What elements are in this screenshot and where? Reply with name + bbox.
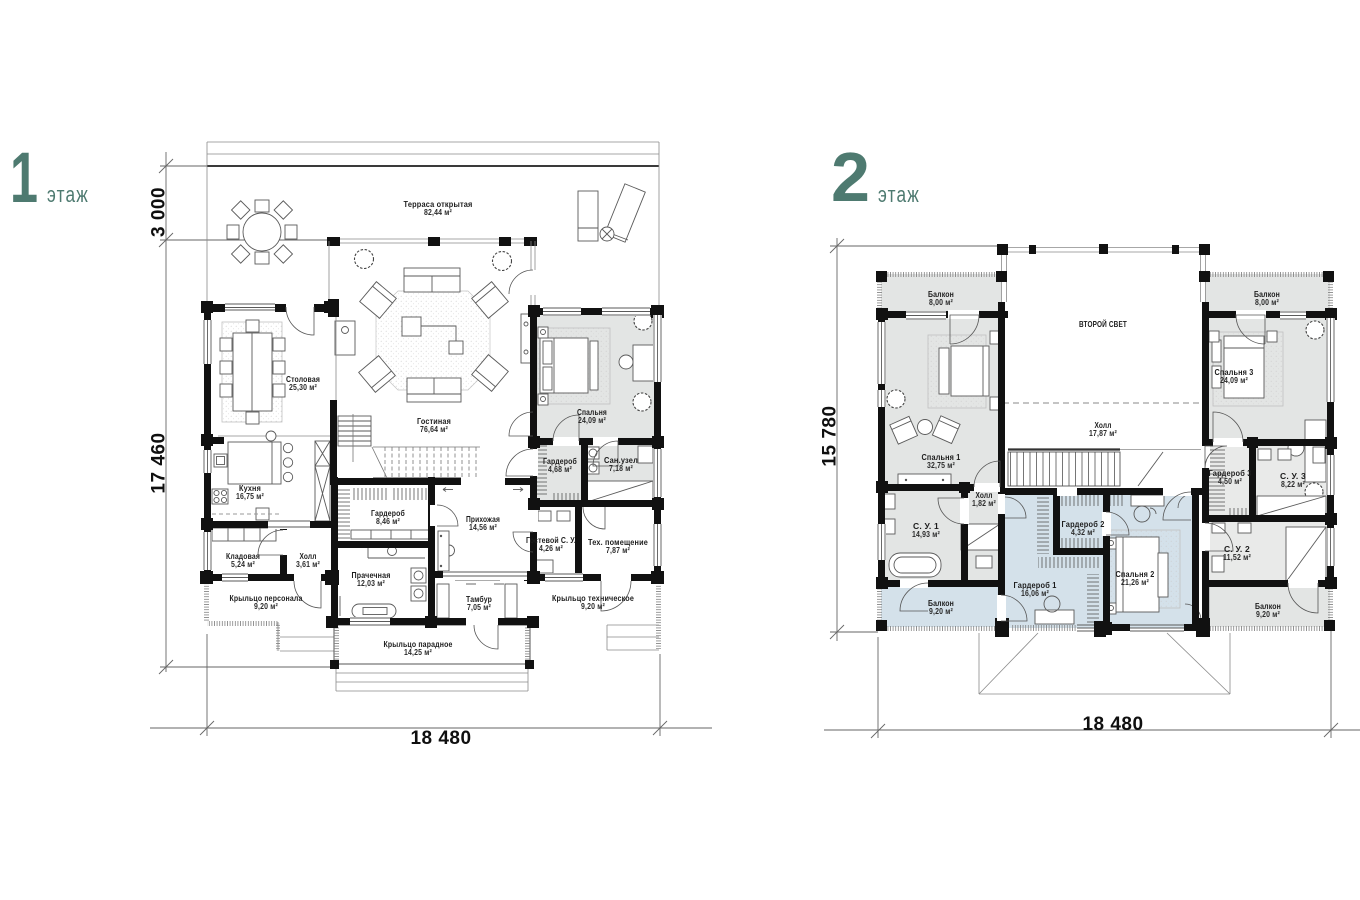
svg-text:3 000: 3 000 — [149, 187, 170, 237]
svg-text:24,09 м²: 24,09 м² — [578, 416, 606, 425]
svg-text:4,68 м²: 4,68 м² — [548, 465, 572, 474]
svg-text:8,00 м²: 8,00 м² — [929, 298, 953, 307]
svg-text:8,22 м²: 8,22 м² — [1281, 480, 1305, 489]
svg-text:21,26 м²: 21,26 м² — [1121, 578, 1149, 587]
svg-text:9,20 м²: 9,20 м² — [929, 607, 953, 616]
svg-text:1,82 м²: 1,82 м² — [972, 499, 996, 508]
svg-text:9,20 м²: 9,20 м² — [1256, 610, 1280, 619]
svg-text:этаж: этаж — [47, 182, 89, 207]
svg-text:ВТОРОЙ СВЕТ: ВТОРОЙ СВЕТ — [1079, 318, 1128, 329]
svg-text:16,06 м²: 16,06 м² — [1021, 589, 1049, 598]
svg-text:7,18 м²: 7,18 м² — [609, 464, 633, 473]
svg-text:этаж: этаж — [878, 182, 920, 207]
svg-text:7,05 м²: 7,05 м² — [467, 603, 491, 612]
svg-text:76,64 м²: 76,64 м² — [420, 425, 448, 434]
svg-text:32,75 м²: 32,75 м² — [927, 461, 955, 470]
svg-text:3,61 м²: 3,61 м² — [296, 560, 320, 569]
svg-text:5,24 м²: 5,24 м² — [231, 560, 255, 569]
svg-text:25,30 м²: 25,30 м² — [289, 383, 317, 392]
svg-text:14,56 м²: 14,56 м² — [469, 523, 497, 532]
svg-text:18 480: 18 480 — [1082, 714, 1143, 735]
svg-text:11,52 м²: 11,52 м² — [1223, 553, 1251, 562]
svg-text:18 480: 18 480 — [410, 728, 471, 749]
svg-text:15 780: 15 780 — [820, 405, 841, 466]
svg-text:4,26 м²: 4,26 м² — [539, 544, 563, 553]
svg-text:7,87 м²: 7,87 м² — [606, 546, 630, 555]
svg-text:17 460: 17 460 — [149, 432, 170, 493]
svg-text:24,09 м²: 24,09 м² — [1220, 376, 1248, 385]
svg-text:9,20 м²: 9,20 м² — [254, 602, 278, 611]
svg-text:8,46 м²: 8,46 м² — [376, 517, 400, 526]
svg-text:4,50 м²: 4,50 м² — [1218, 477, 1242, 486]
svg-text:17,87 м²: 17,87 м² — [1089, 429, 1117, 438]
svg-text:16,75 м²: 16,75 м² — [236, 492, 264, 501]
svg-text:14,25 м²: 14,25 м² — [404, 648, 432, 657]
svg-text:12,03 м²: 12,03 м² — [357, 579, 385, 588]
svg-text:1: 1 — [10, 139, 38, 218]
svg-text:14,93 м²: 14,93 м² — [912, 530, 940, 539]
svg-text:2: 2 — [831, 138, 870, 216]
svg-text:4,32 м²: 4,32 м² — [1071, 528, 1095, 537]
svg-text:82,44 м²: 82,44 м² — [424, 208, 452, 217]
svg-text:9,20 м²: 9,20 м² — [581, 602, 605, 611]
svg-text:8,00 м²: 8,00 м² — [1255, 298, 1279, 307]
